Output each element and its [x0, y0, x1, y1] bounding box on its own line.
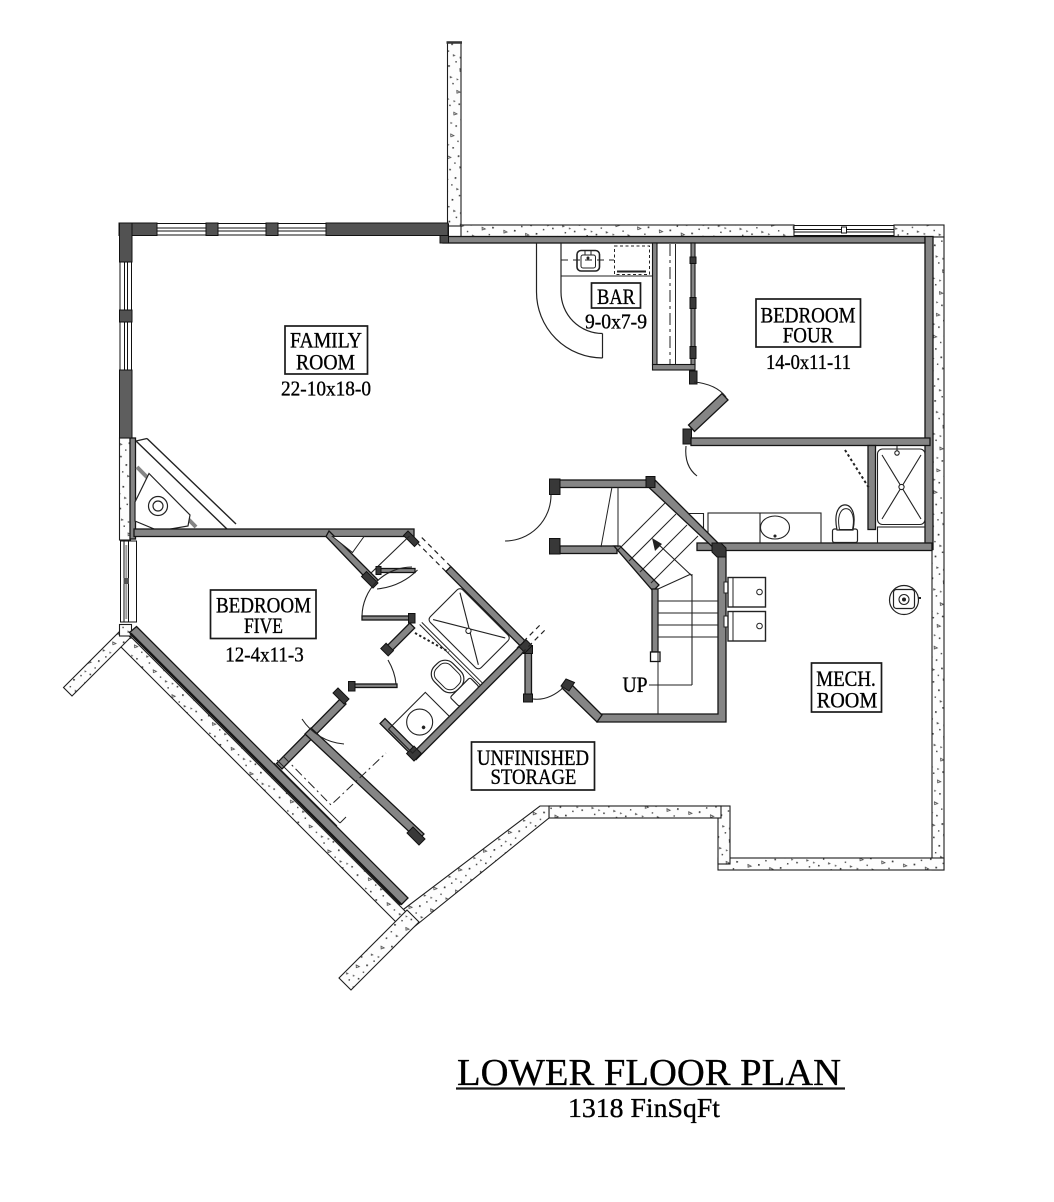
svg-text:UP: UP	[623, 672, 648, 697]
svg-text:22-10x18-0: 22-10x18-0	[281, 377, 371, 401]
svg-text:ROOM: ROOM	[817, 688, 878, 713]
svg-text:12-4x11-3: 12-4x11-3	[225, 643, 304, 667]
svg-text:FOUR: FOUR	[783, 323, 834, 348]
svg-text:14-0x11-11: 14-0x11-11	[766, 350, 851, 374]
svg-text:FIVE: FIVE	[244, 613, 283, 638]
svg-text:ROOM: ROOM	[296, 350, 355, 375]
svg-text:STORAGE: STORAGE	[491, 764, 577, 789]
svg-text:1318 FinSqFt: 1318 FinSqFt	[568, 1093, 721, 1123]
svg-text:9-0x7-9: 9-0x7-9	[585, 310, 647, 334]
svg-text:BAR: BAR	[597, 284, 635, 309]
